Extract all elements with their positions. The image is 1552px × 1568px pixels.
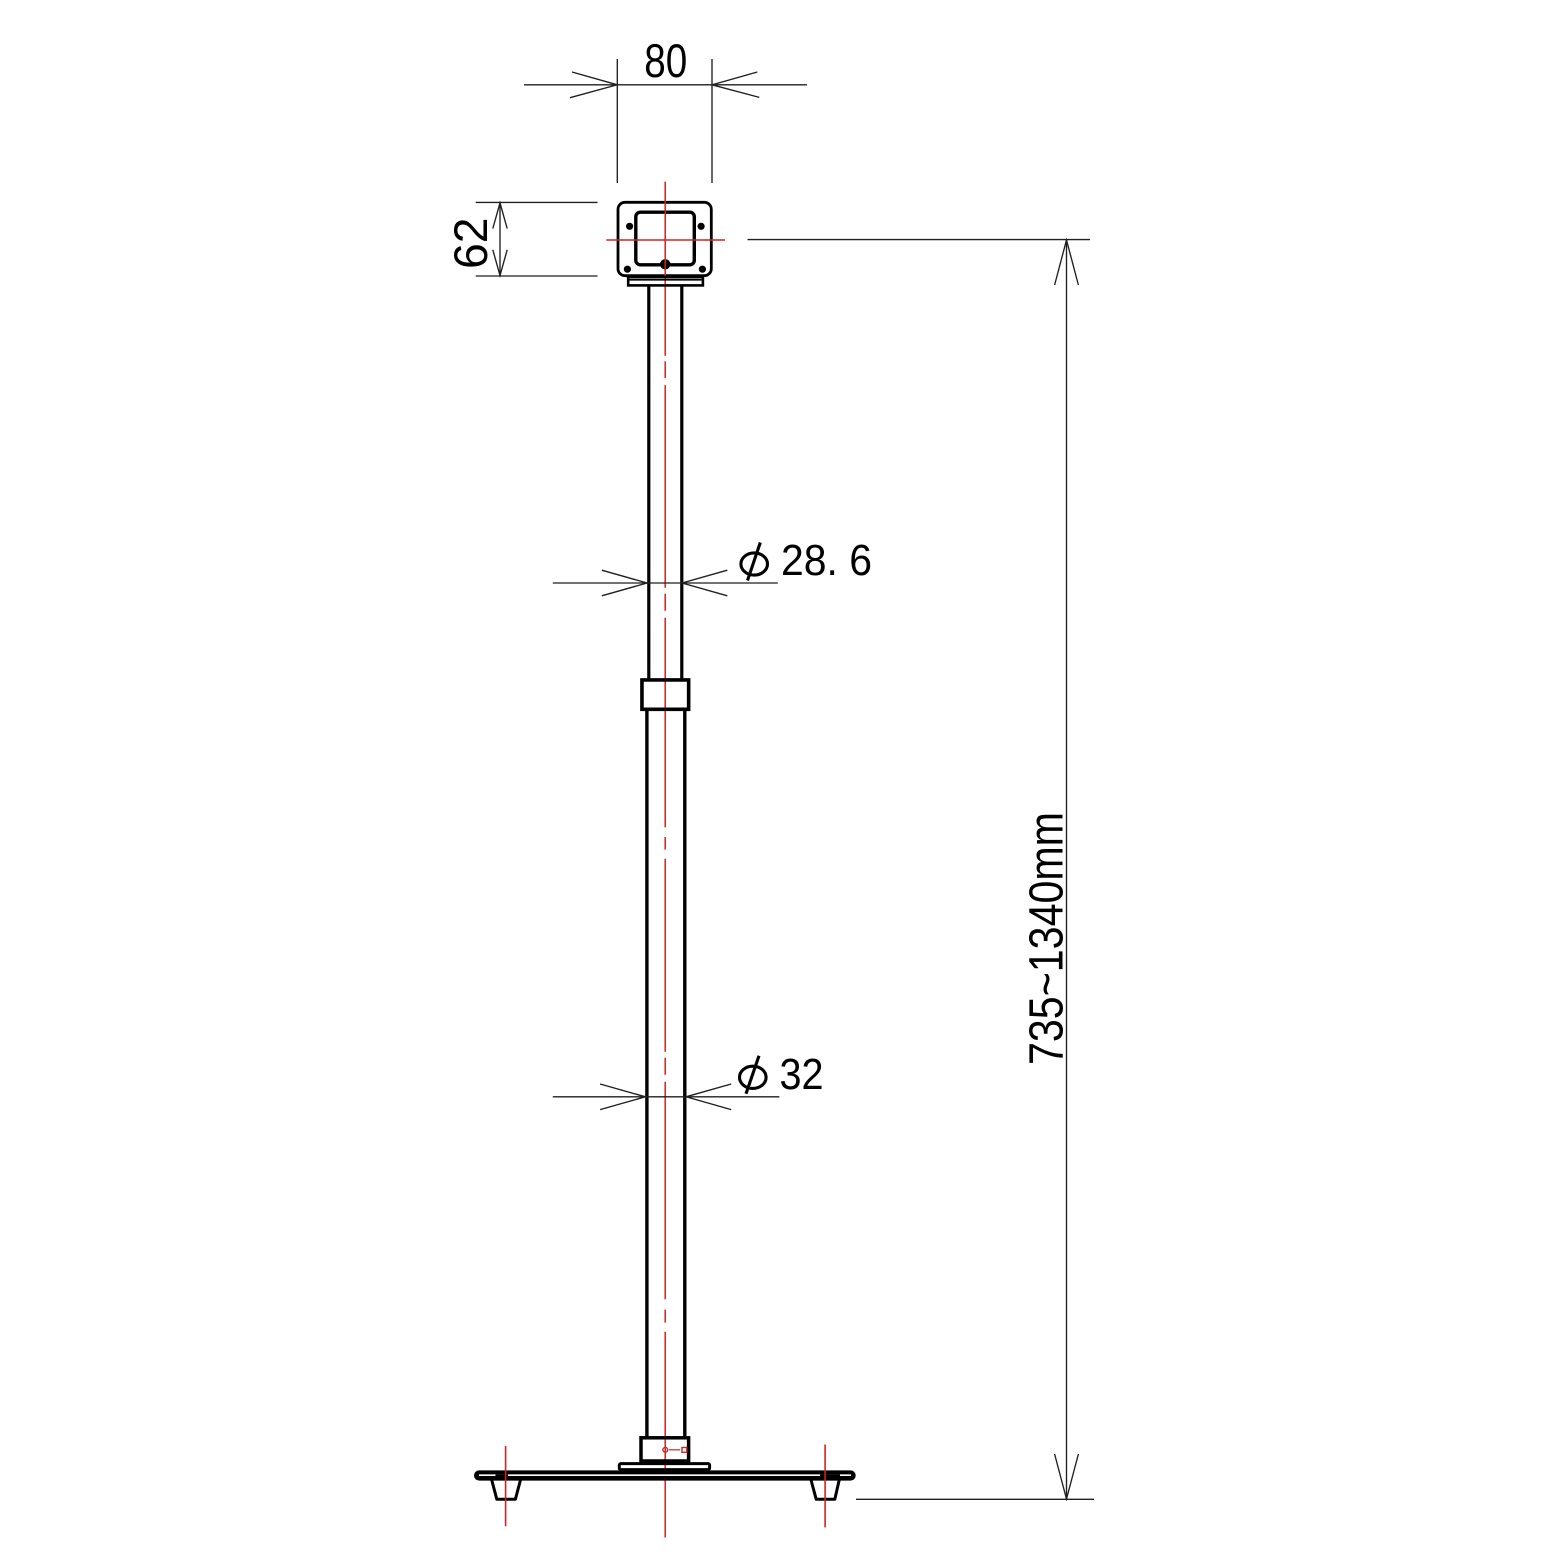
svg-text:735~1340mm: 735~1340mm: [1021, 812, 1074, 1065]
svg-text:32: 32: [780, 1050, 824, 1099]
svg-text:62: 62: [444, 217, 497, 269]
svg-text:80: 80: [644, 34, 687, 87]
svg-text:28. 6: 28. 6: [781, 536, 872, 585]
